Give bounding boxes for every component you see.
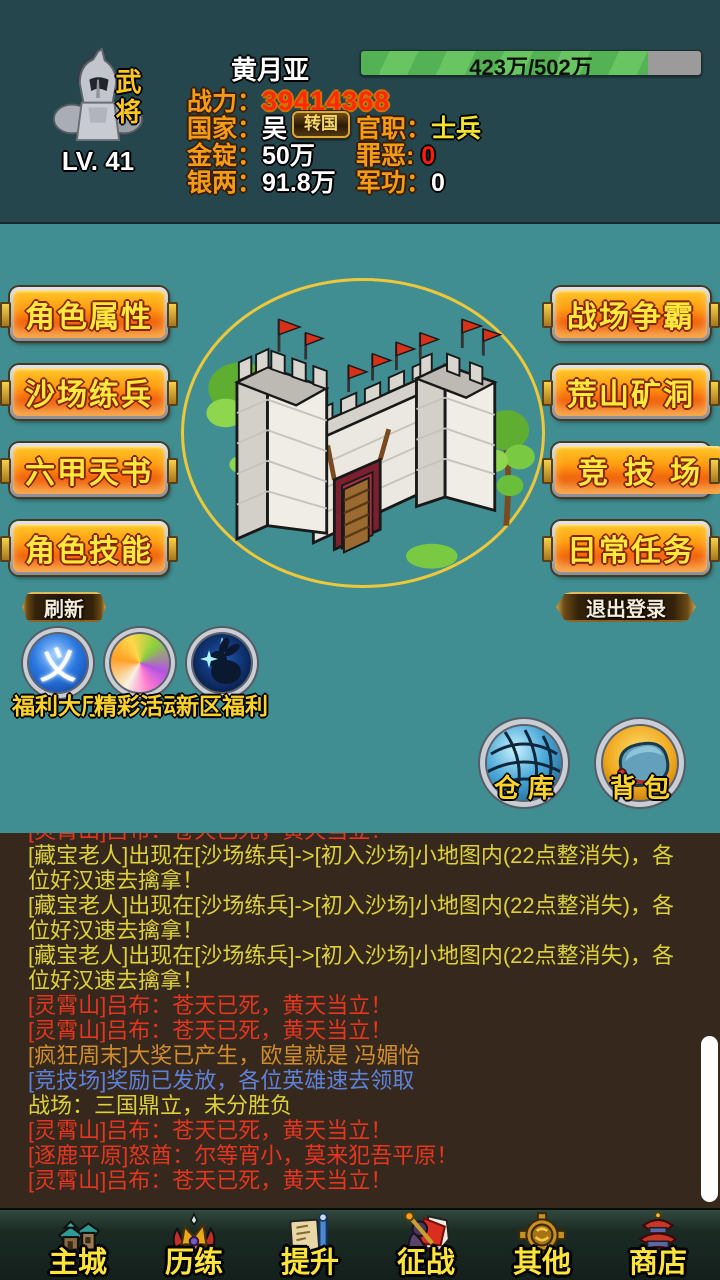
- menu-button-role-attributes[interactable]: 角色属性: [10, 287, 168, 341]
- chat-message: [灵霄山]吕布：苍天已死，黄天当立！: [28, 1168, 690, 1193]
- chat-message: [灵霄山]吕布：苍天已死，黄天当立！: [28, 1118, 690, 1143]
- yi-character-icon: 义: [40, 637, 76, 689]
- menu-button-mine-cave[interactable]: 荒山矿洞: [552, 365, 710, 419]
- silver-label: 银两：: [187, 169, 262, 197]
- chat-message: [灵霄山]吕布：苍天已死，黄天当立！: [28, 1018, 690, 1043]
- stat-sin: 罪恶: 0: [356, 136, 435, 163]
- bush-icon: [406, 544, 458, 569]
- game-screen: 武将 LV. 41 黄月亚 423万/502万 战力：39414368 国家：吴…: [0, 0, 720, 1280]
- chat-log[interactable]: [灵霄山]吕布：苍天已死，黄天当立！ [藏宝老人]出现在[沙场练兵]->[初入沙…: [0, 833, 720, 1208]
- chat-message: 战场：三国鼎立，未分胜负: [28, 1093, 690, 1118]
- stat-rank: 官职：士兵: [356, 109, 481, 136]
- rank-value: 士兵: [431, 115, 481, 143]
- chat-message: [灵霄山]吕布：苍天已死，黄天当立！: [28, 833, 690, 843]
- warehouse-label: 仓库: [464, 768, 584, 805]
- menu-button-battlefield-training[interactable]: 沙场练兵: [10, 365, 168, 419]
- hp-text: 423万/502万: [361, 50, 701, 76]
- chat-message: [灵霄山]吕布：苍天已死，黄天当立！: [28, 993, 690, 1018]
- avatar-class-tag: 武将: [116, 68, 146, 128]
- stat-country: 国家：吴: [187, 109, 287, 136]
- welfare-hall-button[interactable]: 义: [29, 634, 87, 692]
- chat-lines: [灵霄山]吕布：苍天已死，黄天当立！ [藏宝老人]出现在[沙场练兵]->[初入沙…: [28, 833, 690, 1193]
- bottom-nav: 主城 历练 提升: [0, 1208, 720, 1280]
- nav-conquest[interactable]: 征战: [368, 1210, 484, 1280]
- chat-message: [藏宝老人]出现在[沙场练兵]->[初入沙场]小地图内(22点整消失)，各位好汉…: [28, 843, 690, 893]
- refresh-button[interactable]: 刷新: [22, 592, 106, 622]
- castle-circle[interactable]: [181, 278, 545, 588]
- new-zone-welfare-label: 新区福利: [162, 687, 282, 721]
- chat-message: [竞技场]奖励已发放，各位英雄速去领取: [28, 1068, 690, 1093]
- merit-label: 军功：: [356, 169, 431, 197]
- silver-value: 91.8万: [262, 169, 336, 197]
- merit-value: 0: [431, 169, 445, 197]
- stat-silver: 银两：91.8万: [187, 163, 336, 190]
- nav-upgrade[interactable]: 提升: [252, 1210, 368, 1280]
- chat-scrollbar-thumb[interactable]: [701, 1036, 718, 1202]
- player-level: LV. 41: [40, 146, 156, 177]
- menu-button-role-skills[interactable]: 角色技能: [10, 521, 168, 575]
- menu-button-liujia-book[interactable]: 六甲天书: [10, 443, 168, 497]
- menu-button-war-hegemony[interactable]: 战场争霸: [552, 287, 710, 341]
- activities-button[interactable]: [111, 634, 169, 692]
- hp-bar: 423万/502万: [360, 50, 702, 76]
- castle-icon: [191, 285, 535, 581]
- nav-experience[interactable]: 历练: [136, 1210, 252, 1280]
- nav-other[interactable]: 其他: [484, 1210, 600, 1280]
- chat-message: [藏宝老人]出现在[沙场练兵]->[初入沙场]小地图内(22点整消失)，各位好汉…: [28, 943, 690, 993]
- stat-merit: 军功：0: [356, 163, 445, 190]
- player-header: 武将 LV. 41 黄月亚 423万/502万 战力：39414368 国家：吴…: [0, 0, 720, 224]
- stat-gold: 金锭：50万: [187, 136, 315, 163]
- menu-button-arena[interactable]: 竞技场: [552, 443, 710, 497]
- rabbit-icon: [193, 634, 251, 692]
- new-zone-welfare-button[interactable]: [193, 634, 251, 692]
- chat-message: [逐鹿平原]怒酋：尔等宵小，莫来犯吾平原！: [28, 1143, 690, 1168]
- backpack-label: 背包: [580, 768, 700, 805]
- chat-message: [藏宝老人]出现在[沙场练兵]->[初入沙场]小地图内(22点整消失)，各位好汉…: [28, 893, 690, 943]
- transfer-country-button[interactable]: 转国: [292, 111, 350, 138]
- stat-power: 战力：39414368: [187, 82, 390, 109]
- nav-shop[interactable]: 商店: [600, 1210, 716, 1280]
- logout-button[interactable]: 退出登录: [556, 592, 696, 622]
- menu-button-daily-tasks[interactable]: 日常任务: [552, 521, 710, 575]
- chat-message: [疯狂周末]大奖已产生，欧皇就是 冯媚怡: [28, 1043, 690, 1068]
- nav-main-city[interactable]: 主城: [20, 1210, 136, 1280]
